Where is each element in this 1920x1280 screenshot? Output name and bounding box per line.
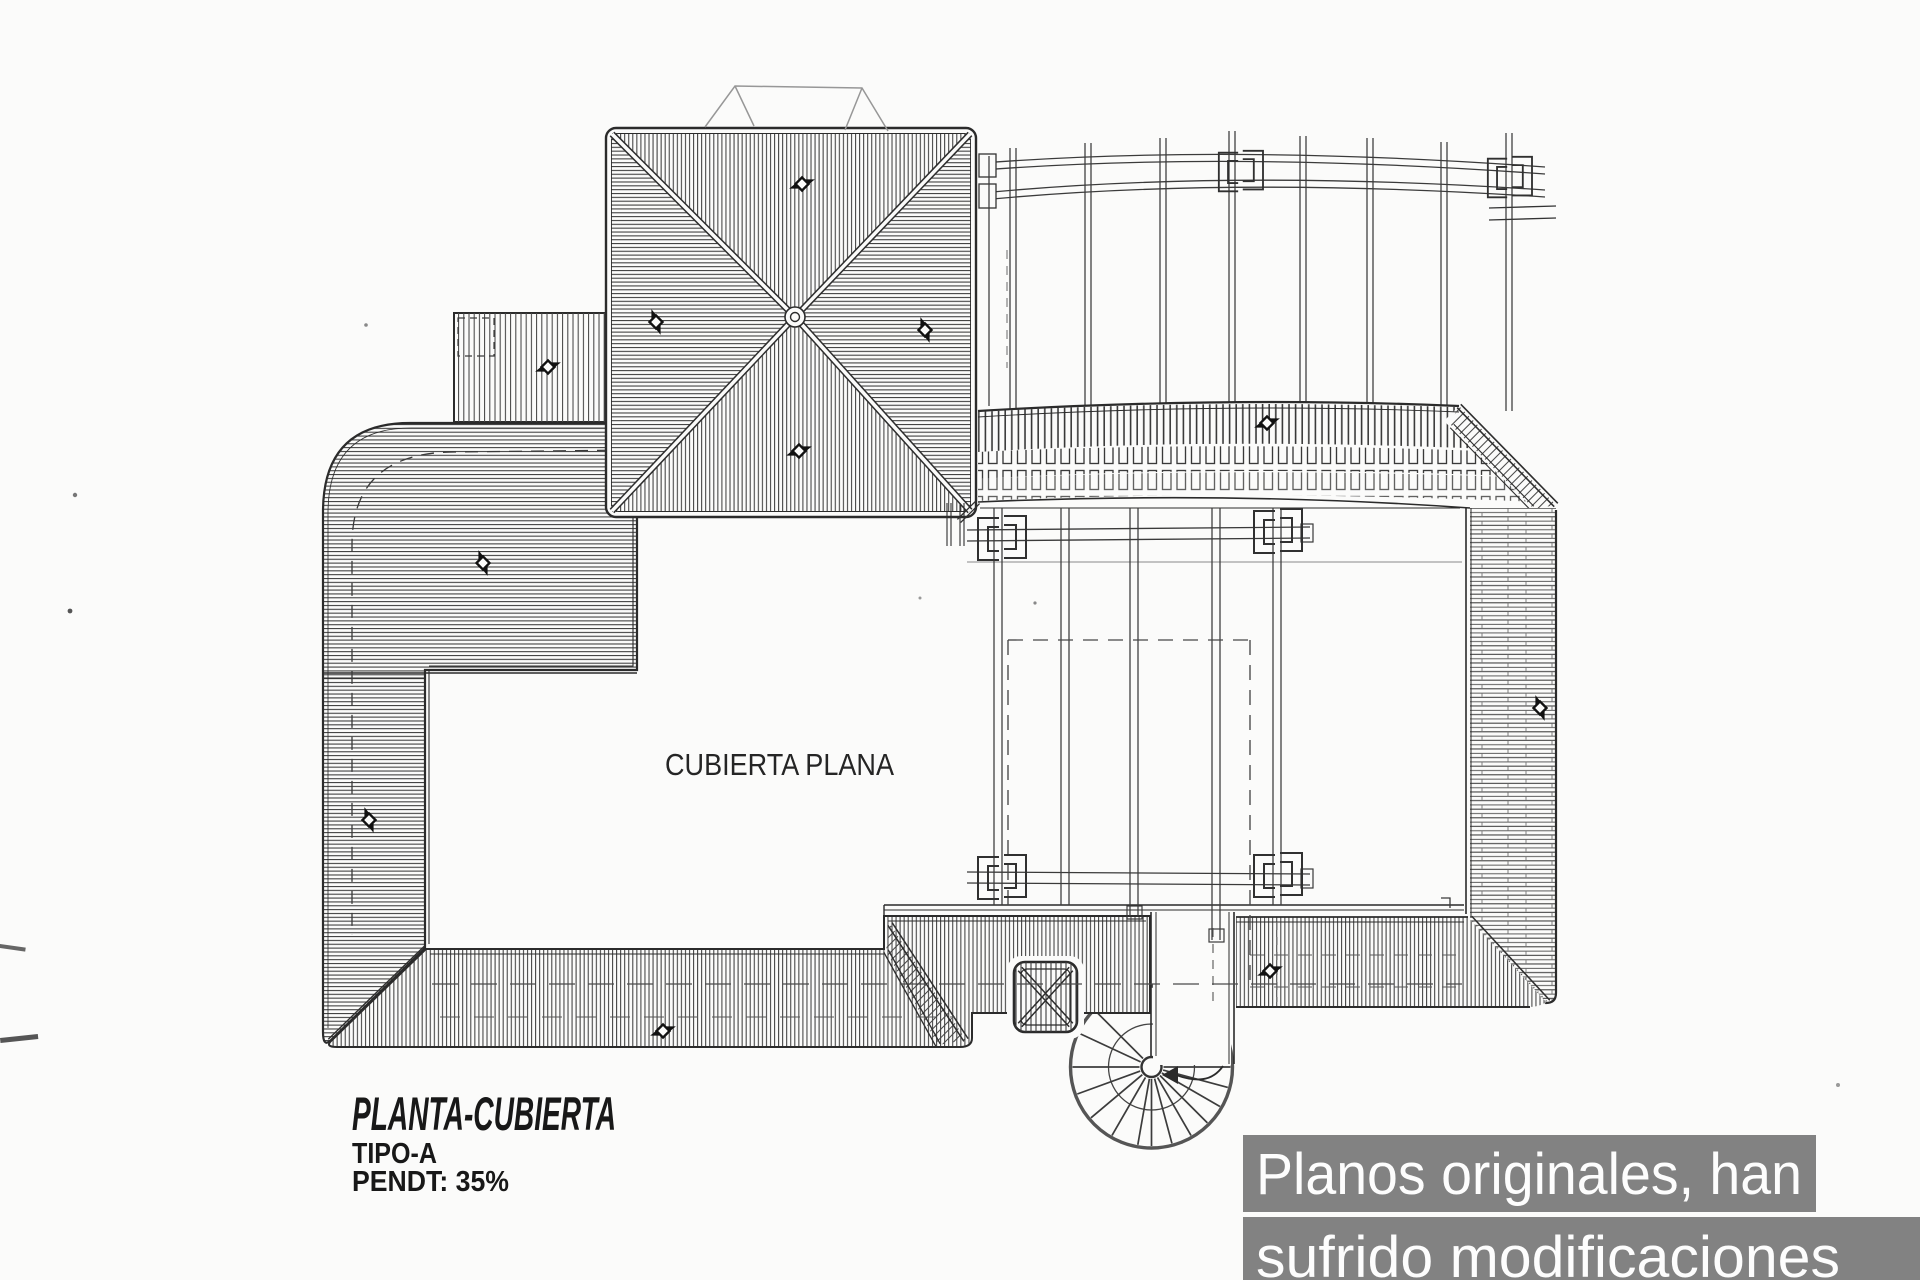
svg-text:CUBIERTA PLANA: CUBIERTA PLANA: [665, 748, 895, 782]
svg-text:Planos originales, han: Planos originales, han: [1256, 1142, 1802, 1207]
svg-text:sufrido modificaciones: sufrido modificaciones: [1256, 1225, 1840, 1280]
svg-text:PENDT: 35%: PENDT: 35%: [352, 1166, 509, 1198]
svg-text:PLANTA-CUBIERTA: PLANTA-CUBIERTA: [352, 1087, 616, 1140]
